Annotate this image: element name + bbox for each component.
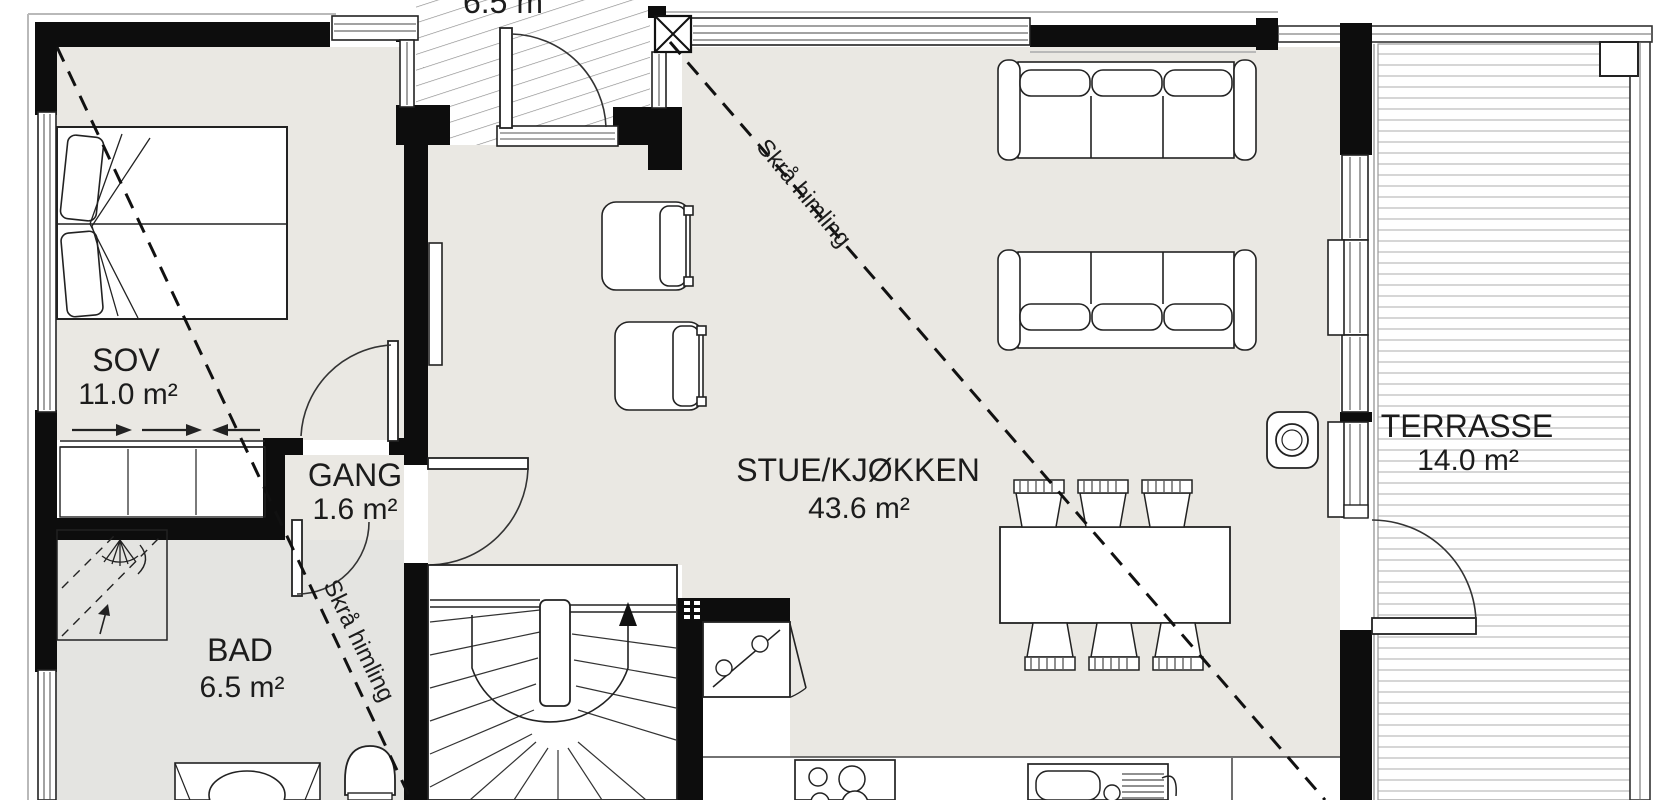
toilet-bowl <box>345 746 395 795</box>
armchair-foot <box>684 277 693 286</box>
wood-stove <box>1267 412 1318 468</box>
sofa-body <box>1018 252 1234 348</box>
stove-flue-inner <box>1282 430 1302 450</box>
wall-north-bedroom <box>35 22 330 47</box>
wall-bath-north <box>35 518 285 540</box>
sink-drain <box>1104 785 1120 800</box>
wall-ne-post <box>1256 18 1278 50</box>
armchair-foot <box>684 206 693 215</box>
floor-plan: SOV 11.0 m² GANG 1.6 m² BAD 6.5 m² STUE/… <box>0 0 1670 800</box>
vanity-sink <box>175 763 320 800</box>
armchair-1 <box>602 202 693 290</box>
sofa-armrest <box>998 60 1020 160</box>
dining-chair <box>1014 480 1064 527</box>
floor-plan-canvas: SOV 11.0 m² GANG 1.6 m² BAD 6.5 m² STUE/… <box>0 0 1670 800</box>
dining-chair <box>1025 623 1075 670</box>
bedroom-door-leaf <box>388 341 398 441</box>
tv <box>429 243 442 365</box>
dining-chair <box>1153 623 1203 670</box>
armchair-back <box>660 206 686 286</box>
terrace-door-leaf <box>1372 618 1476 634</box>
sofa-armrest <box>1234 250 1256 350</box>
sofa-back-cushion <box>1164 304 1232 330</box>
living-door-leaf <box>428 458 528 469</box>
armchair-back <box>673 326 699 406</box>
wall-hall-north-left <box>285 438 303 455</box>
floor-kitchen-nook <box>703 697 790 758</box>
wall-living-west <box>404 105 428 440</box>
winder-staircase <box>428 565 677 800</box>
armchair-foot <box>697 326 706 335</box>
room-label-bad: BAD <box>207 632 273 668</box>
sofa-back-cushion <box>1020 304 1090 330</box>
dining-table <box>1000 527 1230 623</box>
wall-living-nw <box>648 107 682 170</box>
sofa-back-cushion <box>1164 70 1232 96</box>
room-label-sov: SOV <box>92 342 160 378</box>
wall-west-mid <box>35 410 57 672</box>
sink-basin <box>1036 771 1100 800</box>
room-label-stue: STUE/KJØKKEN <box>736 452 980 488</box>
sofa-1 <box>998 60 1256 160</box>
window-east-2 <box>1342 240 1368 335</box>
bed-pillow <box>60 134 105 221</box>
window-east-3 <box>1342 335 1368 412</box>
wall-east-bottom <box>1340 630 1372 800</box>
terrace-door-jamb <box>1344 505 1368 518</box>
dining-chair <box>1089 623 1139 670</box>
sofa-back-cushion <box>1092 70 1162 96</box>
toilet-tank <box>348 793 392 800</box>
window-living-north <box>691 18 1030 45</box>
dining-chair <box>1078 480 1128 527</box>
bathroom-door-leaf <box>292 520 302 596</box>
wall-east-mullion <box>1340 412 1372 422</box>
room-area-bad: 6.5 m² <box>199 671 284 704</box>
sofa-armrest <box>1234 60 1256 160</box>
window-east-1 <box>1342 155 1368 240</box>
window-sill-east-4 <box>1328 422 1344 517</box>
room-label-gang: GANG <box>308 457 402 493</box>
window-east-4 <box>1342 422 1368 517</box>
stair-newel <box>540 600 570 706</box>
sofa-back-cushion <box>1092 304 1162 330</box>
room-area-gang: 1.6 m² <box>312 493 397 526</box>
room-area-terrasse: 14.0 m² <box>1417 444 1519 477</box>
toilet <box>345 746 395 800</box>
wardrobe-body <box>60 447 265 517</box>
armchair-2 <box>615 322 706 410</box>
dining-chair <box>1142 480 1192 527</box>
sofa-2 <box>998 250 1256 350</box>
window-bedroom-west <box>38 112 56 412</box>
entry-door-leaf <box>500 28 512 128</box>
wall-east-top <box>1340 23 1372 155</box>
sofa-armrest <box>998 250 1020 350</box>
window-bath-west <box>38 670 56 800</box>
wall-stair-west <box>404 563 428 800</box>
sofa-back-cushion <box>1020 70 1090 96</box>
window-bedroom-north <box>332 16 418 40</box>
dimension-label-top: 6.5 m <box>463 0 543 20</box>
wall-hall-east-top <box>404 440 428 465</box>
kitchen-sink <box>1028 764 1176 800</box>
room-label-terrasse: TERRASSE <box>1381 408 1553 444</box>
double-bed <box>57 127 287 319</box>
terrace-corner-post <box>1600 42 1638 76</box>
wall-kitchen-west <box>677 622 703 800</box>
wall-north-living <box>1030 25 1256 47</box>
cooktop <box>795 760 895 800</box>
room-area-sov: 11.0 m² <box>78 378 177 411</box>
armchair-foot <box>697 397 706 406</box>
room-area-stue: 43.6 m² <box>808 492 910 525</box>
window-sill-east-2 <box>1328 240 1344 335</box>
wall-west-top <box>35 22 57 115</box>
wall-hall-west <box>263 438 285 520</box>
wall-closet-north <box>677 598 790 622</box>
fridge-freezer <box>703 622 806 697</box>
